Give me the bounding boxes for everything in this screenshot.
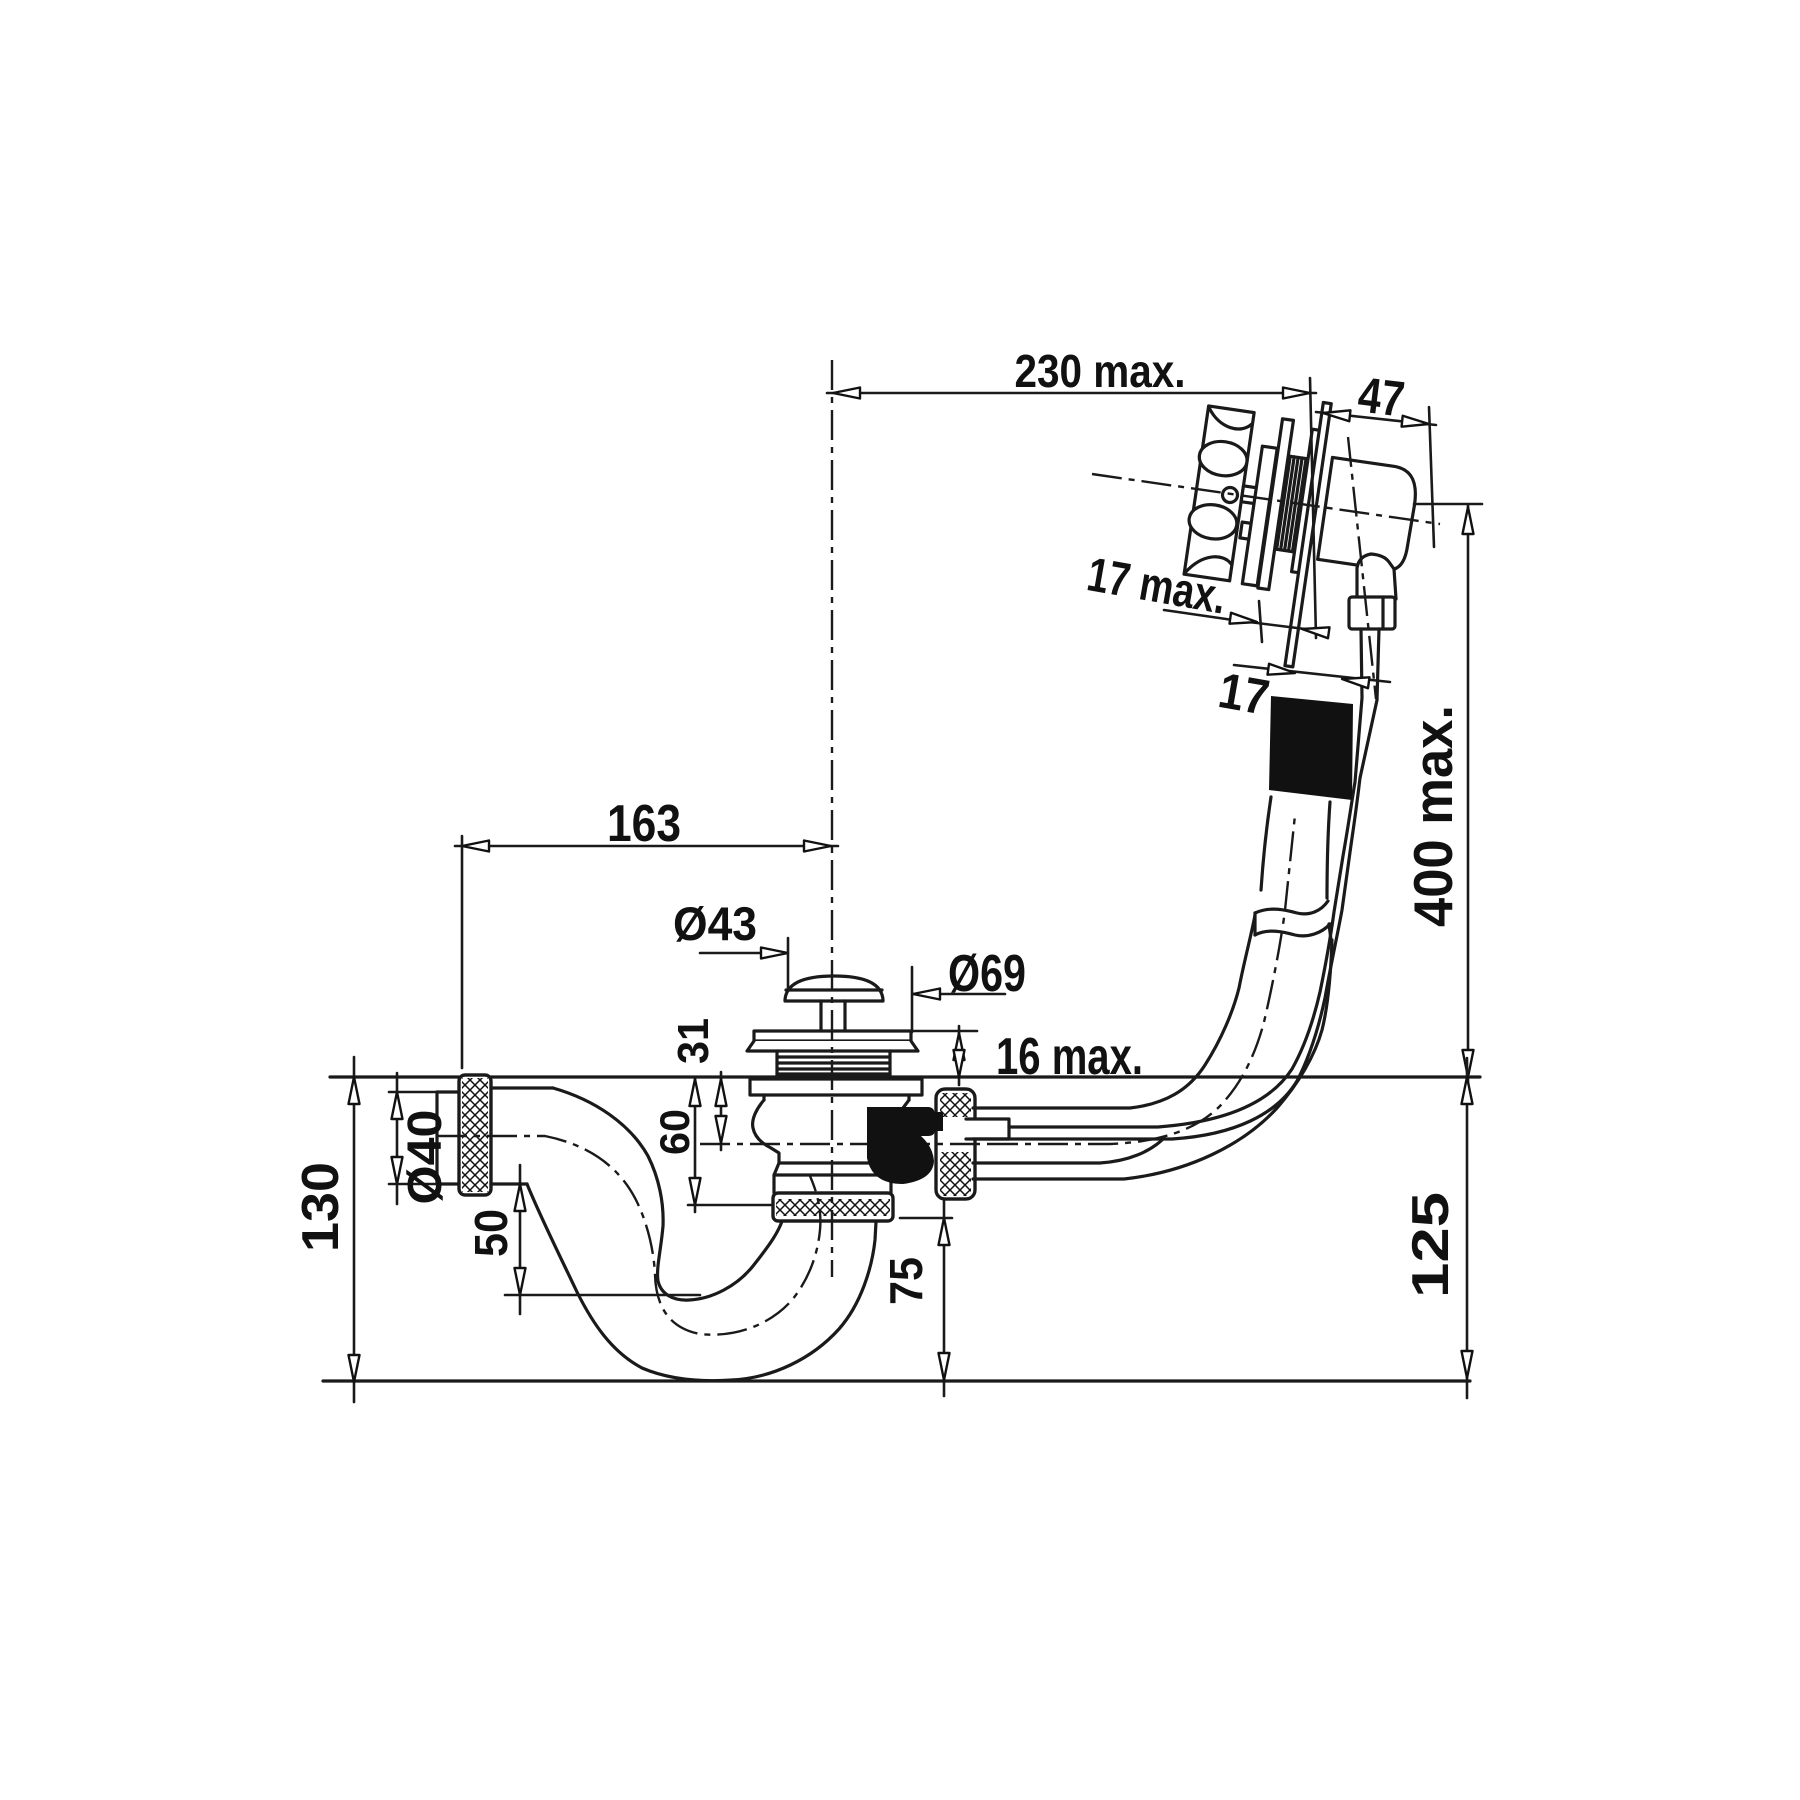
svg-text:Ø43: Ø43: [673, 897, 757, 950]
svg-text:17: 17: [1215, 662, 1274, 726]
svg-text:50: 50: [465, 1209, 517, 1257]
svg-text:60: 60: [651, 1109, 698, 1155]
svg-text:Ø40: Ø40: [399, 1110, 452, 1205]
svg-text:31: 31: [669, 1018, 718, 1064]
svg-text:230 max.: 230 max.: [1015, 345, 1186, 397]
svg-text:163: 163: [607, 795, 681, 853]
svg-text:130: 130: [292, 1162, 350, 1252]
svg-text:Ø69: Ø69: [948, 945, 1026, 1003]
svg-text:75: 75: [880, 1257, 932, 1305]
svg-text:16 max.: 16 max.: [996, 1028, 1143, 1086]
svg-text:47: 47: [1355, 366, 1407, 427]
svg-text:400 max.: 400 max.: [1402, 705, 1464, 927]
svg-text:125: 125: [1402, 1192, 1460, 1298]
